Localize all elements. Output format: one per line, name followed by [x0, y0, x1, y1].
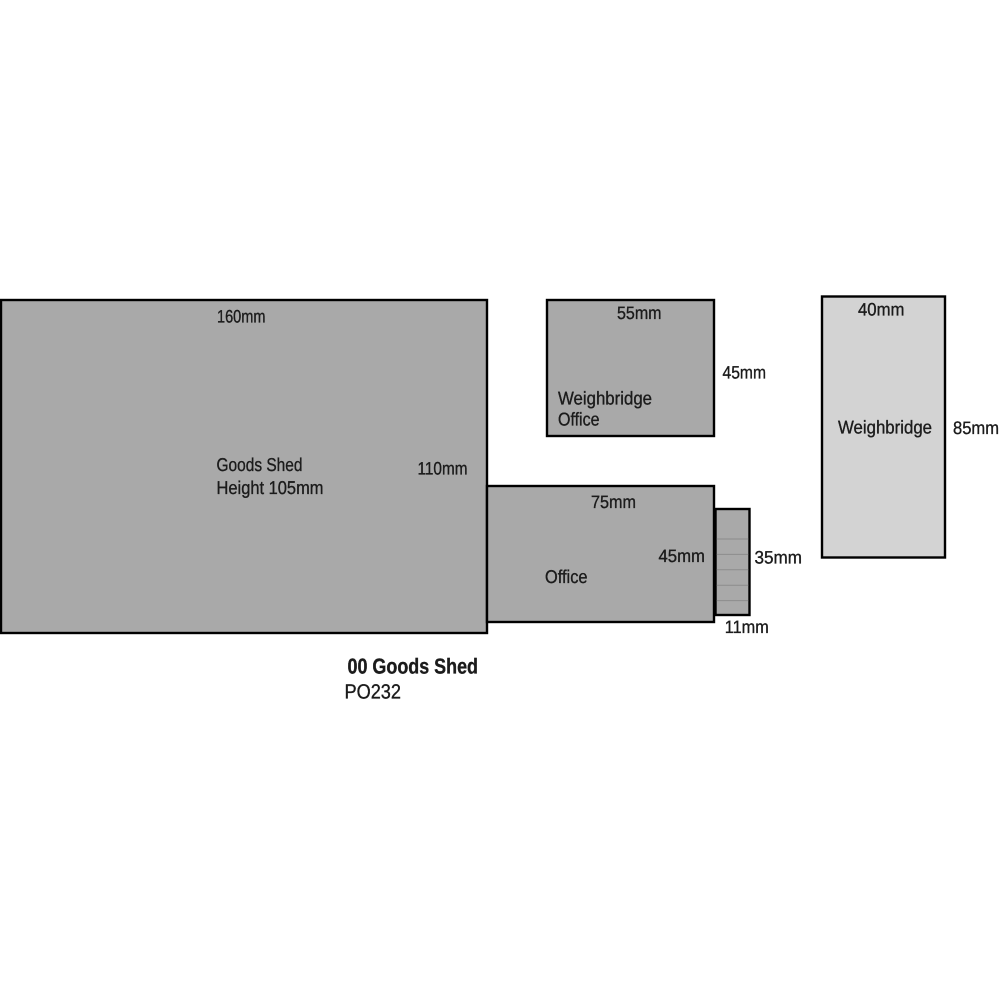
svg-text:55mm: 55mm	[617, 303, 662, 323]
svg-text:Weighbridge: Weighbridge	[838, 416, 932, 437]
svg-text:Weighbridge: Weighbridge	[558, 388, 652, 409]
svg-text:Goods Shed: Goods Shed	[217, 454, 303, 475]
svg-text:45mm: 45mm	[723, 363, 767, 383]
svg-text:75mm: 75mm	[591, 492, 636, 512]
svg-text:Office: Office	[545, 566, 588, 587]
svg-text:Height 105mm: Height 105mm	[217, 477, 324, 498]
svg-text:11mm: 11mm	[725, 617, 769, 637]
svg-text:PO232: PO232	[345, 681, 402, 704]
svg-text:160mm: 160mm	[217, 307, 266, 327]
svg-text:00 Goods Shed: 00 Goods Shed	[348, 655, 479, 679]
svg-text:110mm: 110mm	[418, 458, 468, 478]
svg-text:35mm: 35mm	[755, 547, 803, 567]
svg-text:45mm: 45mm	[659, 546, 706, 566]
svg-text:Office: Office	[558, 408, 600, 429]
svg-text:85mm: 85mm	[953, 418, 999, 438]
svg-text:40mm: 40mm	[858, 299, 905, 319]
